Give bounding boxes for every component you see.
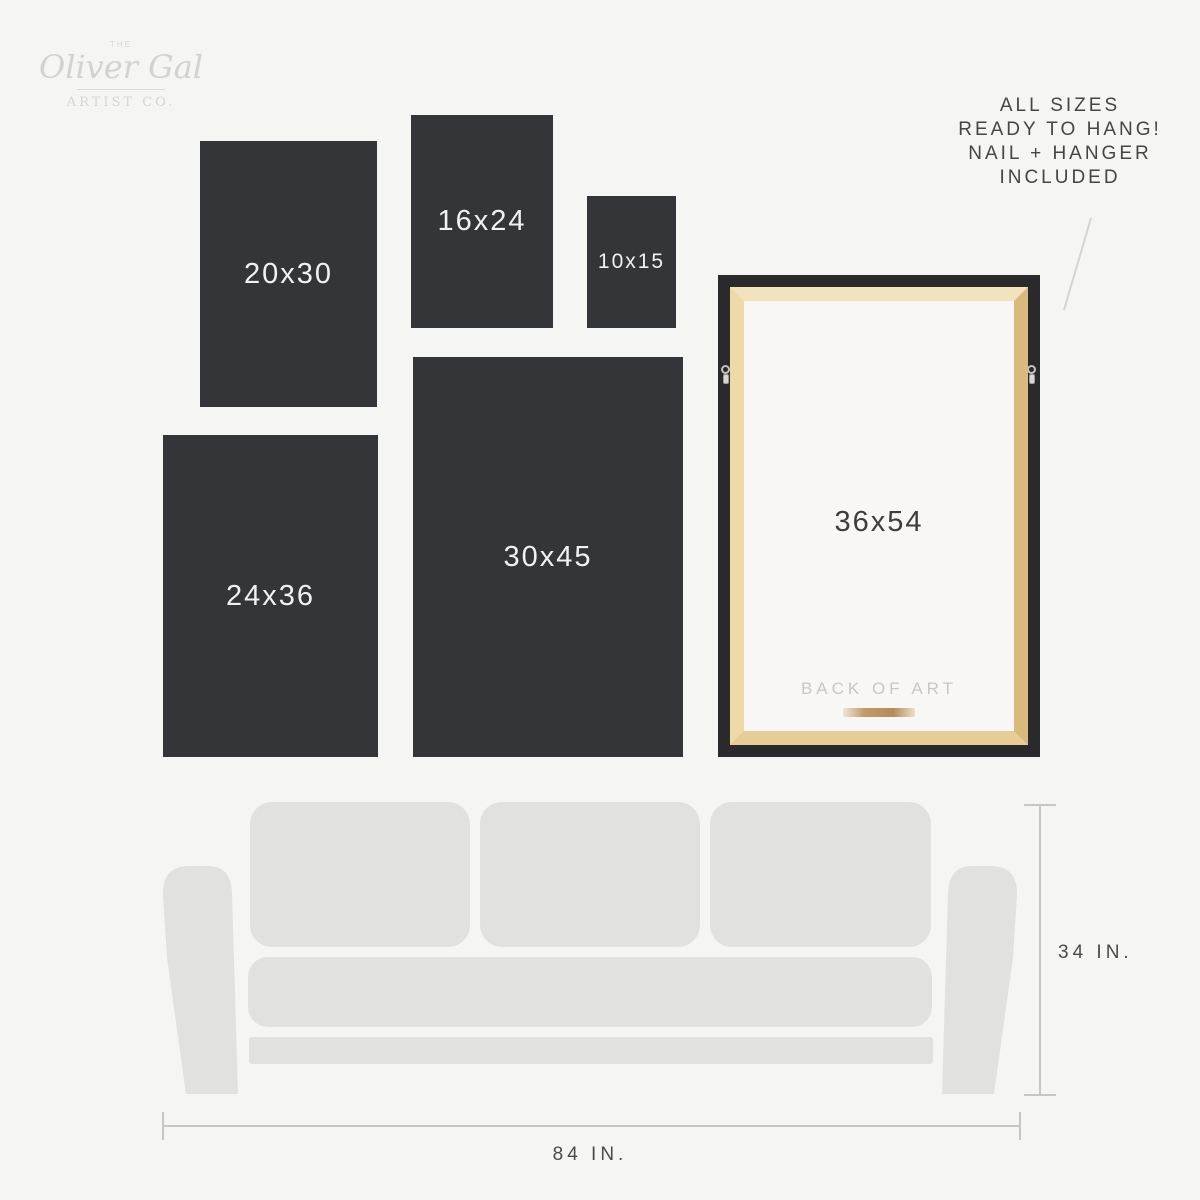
couch-armrest-left xyxy=(163,866,238,1094)
size-label: 10x15 xyxy=(598,250,665,274)
size-label: 20x30 xyxy=(244,258,333,291)
couch-silhouette xyxy=(163,802,1017,1094)
size-label: 36x54 xyxy=(834,506,923,539)
size-box-16x24: 16x24 xyxy=(411,115,553,328)
frame-back-36x54: 36x54 BACK OF ART xyxy=(718,275,1040,757)
canvas-back: 36x54 xyxy=(744,301,1014,731)
size-box-20x30: 20x30 xyxy=(200,141,377,407)
wood-stamp xyxy=(843,708,915,717)
brand-logo: THE Oliver Gal ARTIST CO. xyxy=(36,40,206,110)
size-label: 24x36 xyxy=(226,580,315,613)
brand-divider xyxy=(77,89,165,90)
size-box-10x15: 10x15 xyxy=(587,196,676,328)
couch-base xyxy=(249,1037,933,1064)
size-box-24x36: 24x36 xyxy=(163,435,378,757)
brand-suffix: ARTIST CO. xyxy=(36,95,206,110)
couch-back-cushion xyxy=(480,802,700,947)
size-label: 30x45 xyxy=(503,541,592,574)
hanger-ring-icon xyxy=(1027,365,1036,374)
couch-width-label: 84 IN. xyxy=(530,1144,650,1166)
hanger-ring-icon xyxy=(721,365,730,374)
couch-height-label: 34 IN. xyxy=(1058,942,1133,964)
couch-back-cushion xyxy=(250,802,470,947)
size-box-30x45: 30x45 xyxy=(413,357,683,757)
note-leader-line xyxy=(1064,218,1091,310)
size-label: 16x24 xyxy=(437,205,526,238)
stretcher-bar-frame: 36x54 BACK OF ART xyxy=(730,287,1028,745)
couch-armrest-right xyxy=(942,866,1017,1094)
size-guide-infographic: THE Oliver Gal ARTIST CO. ALL SIZES READ… xyxy=(0,0,1200,1200)
hanger-plate-icon xyxy=(1029,374,1035,384)
couch-seat-cushion xyxy=(248,957,932,1027)
ready-to-hang-note: ALL SIZES READY TO HANG! NAIL + HANGER I… xyxy=(948,94,1172,190)
hanger-plate-icon xyxy=(723,374,729,384)
brand-name: Oliver Gal xyxy=(36,49,206,85)
back-of-art-label: BACK OF ART xyxy=(744,679,1014,699)
d-ring-hanger-icon xyxy=(719,365,733,391)
couch-back-cushion xyxy=(710,802,931,947)
d-ring-hanger-icon xyxy=(1025,365,1039,391)
